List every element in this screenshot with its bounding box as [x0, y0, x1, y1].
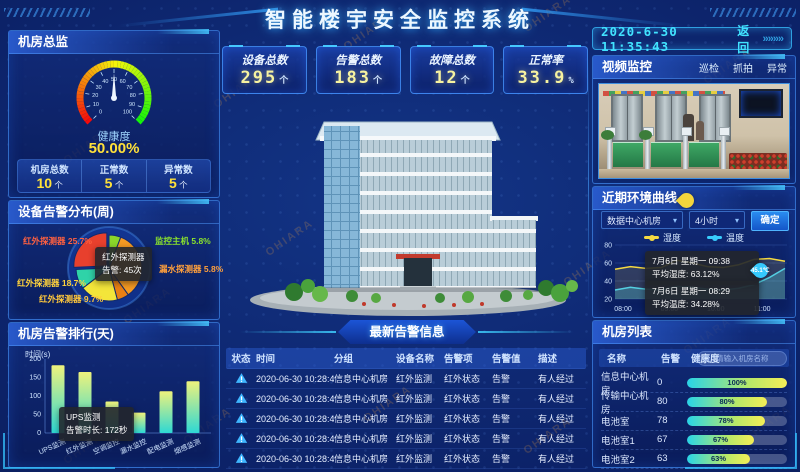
- alarm-desc: 有人经过: [538, 452, 586, 465]
- legend-marker-icon: [707, 236, 722, 239]
- health-bar-fill: 63%: [687, 454, 750, 464]
- svg-text:90: 90: [129, 102, 135, 108]
- col-alarms: 告警: [661, 351, 691, 365]
- latest-alarm-banner: 最新告警信息: [338, 320, 476, 344]
- col-name: 名称: [607, 351, 661, 365]
- alarm-value: 告警: [492, 372, 538, 385]
- alarm-group: 信息中心机房: [334, 392, 396, 405]
- room-metric-1: 正常数5 个: [81, 160, 145, 192]
- room-select-value: 数据中心机房: [607, 216, 661, 226]
- alarm-desc: 有人经过: [538, 372, 586, 385]
- health-bar-track: 67%: [687, 435, 787, 445]
- stat-row: 设备总数295个告警总数183个故障总数12个正常率33.9%: [222, 46, 588, 94]
- room-alarm-count: 80: [657, 396, 687, 407]
- video-tab-0[interactable]: 巡检: [699, 60, 719, 75]
- metric-unit: 个: [112, 180, 123, 190]
- video-tab-1[interactable]: 抓拍: [733, 60, 753, 75]
- stat-label: 设备总数: [223, 52, 306, 68]
- alarm-item: 红外状态: [444, 432, 492, 445]
- svg-text:60: 60: [604, 261, 612, 268]
- alarm-col-header: 告警值: [492, 351, 538, 365]
- health-bar-fill: 100%: [687, 378, 787, 388]
- plant: [639, 130, 652, 140]
- alarm-value: 告警: [492, 432, 538, 445]
- room-list-row: 传输中心机房8080%: [601, 392, 787, 412]
- alarm-item: 红外状态: [444, 392, 492, 405]
- chevron-down-icon: ▾: [673, 212, 677, 230]
- svg-text:100: 100: [123, 109, 132, 115]
- stat-box-2: 故障总数12个: [410, 46, 495, 94]
- turnstile-glass: [613, 142, 643, 167]
- alarm-col-header: 设备名称: [396, 351, 444, 365]
- warning-icon: [235, 412, 248, 424]
- plant: [601, 130, 614, 140]
- alarm-value: 告警: [492, 392, 538, 405]
- room-alarm-count: 0: [657, 377, 687, 388]
- svg-text:40: 40: [102, 79, 108, 85]
- alarm-status-icon: [226, 432, 256, 446]
- panel-title: 设备告警分布(周): [9, 201, 219, 224]
- alarm-col-header: 状态: [226, 351, 256, 365]
- datetime-display: 2020-6-30 11:35:43: [601, 24, 737, 54]
- svg-text:08:00: 08:00: [614, 306, 632, 313]
- panel-room-overview: 机房总监 0102030405060708090100 健康度 50.00% 机…: [8, 30, 220, 198]
- room-metric-2: 异常数5 个: [146, 160, 210, 192]
- tooltip-date: 7月6日 星期一 08:29: [652, 285, 752, 298]
- room-search-box[interactable]: [697, 351, 787, 366]
- stat-box-3: 正常率33.9%: [503, 46, 588, 94]
- stat-box-1: 告警总数183个: [316, 46, 401, 94]
- alarm-value: 告警: [492, 412, 538, 425]
- room-select[interactable]: 数据中心机房 ▾: [601, 211, 683, 229]
- stat-box-0: 设备总数295个: [222, 46, 307, 94]
- alarm-status-icon: [226, 392, 256, 406]
- stat-label: 正常率: [504, 52, 587, 68]
- stat-unit: 个: [279, 76, 288, 86]
- stat-unit: 个: [373, 76, 382, 86]
- alarm-device: 红外监测: [396, 412, 444, 425]
- stat-value: 295个: [223, 68, 306, 91]
- warning-icon: [235, 452, 248, 464]
- room-metric-0: 机房总数10 个: [18, 160, 81, 192]
- metric-unit: 个: [52, 180, 63, 190]
- metric-value: 5 个: [82, 176, 145, 193]
- health-bar-track: 80%: [687, 397, 787, 407]
- period-select-value: 4小时: [695, 216, 718, 226]
- stat-unit: 个: [461, 76, 470, 86]
- banner-line-left: [240, 331, 336, 333]
- health-bar-track: 100%: [687, 378, 787, 388]
- svg-text:40: 40: [604, 279, 612, 286]
- alarm-item: 红外状态: [444, 412, 492, 425]
- panel-title: 机房告警排行(天): [9, 323, 219, 346]
- turnstile-post: [683, 134, 688, 170]
- svg-text:30: 30: [96, 85, 102, 91]
- panel-video: 视频监控 巡检抓拍异常: [592, 55, 796, 184]
- room-alarm-count: 67: [657, 434, 687, 445]
- alarm-device: 红外监测: [396, 372, 444, 385]
- person: [696, 121, 704, 140]
- health-bar-fill: 80%: [687, 397, 767, 407]
- confirm-button[interactable]: 确定: [751, 211, 789, 231]
- stat-value: 12个: [411, 68, 494, 91]
- pie-tooltip-name: 红外探测器: [102, 251, 145, 264]
- turnstile-glass: [651, 142, 681, 167]
- alarm-status-icon: [226, 452, 256, 466]
- room-search-input[interactable]: [714, 353, 781, 364]
- back-button[interactable]: 返回: [737, 22, 758, 56]
- back-arrows-icon: »»»»: [763, 33, 783, 45]
- period-select[interactable]: 4小时 ▾: [689, 211, 745, 229]
- metric-label: 机房总数: [18, 162, 81, 176]
- svg-text:60: 60: [120, 79, 126, 85]
- alarm-col-header: 描述: [538, 351, 586, 365]
- room-name: 电池室: [601, 414, 657, 428]
- alarm-device: 红外监测: [396, 392, 444, 405]
- gauge-value: 50.00%: [9, 140, 219, 157]
- svg-text:150: 150: [29, 375, 41, 382]
- alarm-time: 2020-06-30 10:28:48: [256, 414, 334, 424]
- building-illustration: [224, 96, 592, 318]
- video-tab-2[interactable]: 异常: [767, 60, 787, 75]
- alarm-group: 信息中心机房: [334, 372, 396, 385]
- svg-text:配电监测: 配电监测: [146, 437, 175, 457]
- alarm-table: 状态时间分组设备名称告警项告警值描述 2020-06-30 10:28:48信息…: [226, 348, 586, 466]
- metric-value: 5 个: [147, 176, 210, 193]
- bar-tooltip-value: 告警时长: 172秒: [66, 424, 127, 437]
- panel-title: 机房列表: [593, 321, 795, 344]
- gauge-svg: 0102030405060708090100: [44, 54, 184, 130]
- alarm-time: 2020-06-30 10:28:48: [256, 394, 334, 404]
- alarm-row: 2020-06-30 10:28:48信息中心机房红外监测红外状态告警有人经过: [226, 369, 586, 389]
- room-alarm-count: 63: [657, 453, 687, 464]
- stat-value: 33.9%: [504, 68, 587, 91]
- env-tooltip-temperature: 7月6日 星期一 08:29 平均温度: 34.28%: [645, 281, 759, 315]
- svg-text:80: 80: [130, 93, 136, 99]
- alarm-row: 2020-06-30 10:28:48信息中心机房红外监测红外状态告警有人经过: [226, 429, 586, 449]
- alarm-group: 信息中心机房: [334, 452, 396, 465]
- chevron-down-icon: ▾: [735, 212, 739, 230]
- alarm-row: 2020-06-30 10:28:48信息中心机房红外监测红外状态告警有人经过: [226, 449, 586, 469]
- metric-label: 正常数: [82, 162, 145, 176]
- alarm-col-header: 时间: [256, 351, 334, 365]
- legend-marker-icon: [644, 236, 659, 239]
- wall-display: [739, 89, 783, 118]
- bar-tooltip: UPS监测 告警时长: 172秒: [59, 407, 134, 441]
- health-bar-fill: 78%: [687, 416, 765, 426]
- alarm-group: 信息中心机房: [334, 432, 396, 445]
- alarm-device: 红外监测: [396, 452, 444, 465]
- svg-text:200: 200: [29, 356, 41, 363]
- turnstile-glass: [689, 142, 719, 167]
- panel-env-curve: 近期环境曲线 数据中心机房 ▾ 4小时 ▾ 确定 湿度温度 2040608008…: [592, 186, 796, 318]
- metric-label: 异常数: [147, 162, 210, 176]
- alarm-desc: 有人经过: [538, 432, 586, 445]
- metric-value: 10 个: [18, 176, 81, 193]
- alarm-table-body: 2020-06-30 10:28:48信息中心机房红外监测红外状态告警有人经过2…: [226, 369, 586, 469]
- room-list-row: 电池室26363%: [601, 449, 787, 469]
- warning-icon: [235, 372, 248, 384]
- svg-text:烟感监测: 烟感监测: [173, 437, 202, 457]
- room-name: 电池室1: [601, 433, 657, 447]
- alarm-time: 2020-06-30 10:28:48: [256, 434, 334, 444]
- pin-label: 45.1℃: [751, 267, 769, 274]
- svg-text:80: 80: [604, 243, 612, 250]
- tooltip-date: 7月6日 星期一 09:38: [652, 255, 752, 268]
- alarm-status-icon: [226, 412, 256, 426]
- stat-label: 告警总数: [317, 52, 400, 68]
- metric-unit: 个: [177, 180, 188, 190]
- divider-line: [588, 58, 589, 310]
- bar-tooltip-name: UPS监测: [66, 411, 127, 424]
- alarm-status-icon: [226, 372, 256, 386]
- alarm-col-header: 分组: [334, 351, 396, 365]
- room-metrics: 机房总数10 个正常数5 个异常数5 个: [17, 159, 211, 193]
- svg-text:20: 20: [604, 297, 612, 304]
- svg-text:20: 20: [92, 93, 98, 99]
- svg-text:50: 50: [33, 412, 41, 419]
- stat-unit: %: [568, 76, 573, 86]
- panel-alarm-ranking: 机房告警排行(天) 时间(s) 050100150200UPS监测红外监测空调监…: [8, 322, 220, 468]
- warning-icon: [235, 432, 248, 444]
- pie-tooltip: 红外探测器 告警: 45次: [95, 247, 152, 281]
- health-gauge[interactable]: 0102030405060708090100: [44, 54, 184, 135]
- room-list-row: 电池室16767%: [601, 430, 787, 450]
- stat-label: 故障总数: [411, 52, 494, 68]
- alarm-row: 2020-06-30 10:28:48信息中心机房红外监测红外状态告警有人经过: [226, 409, 586, 429]
- alarm-table-header: 状态时间分组设备名称告警项告警值描述: [226, 348, 586, 369]
- alarm-device: 红外监测: [396, 432, 444, 445]
- alarm-item: 红外状态: [444, 372, 492, 385]
- svg-text:100: 100: [29, 393, 41, 400]
- health-bar-fill: 67%: [687, 435, 754, 445]
- gate-reader: [681, 127, 692, 136]
- alarm-desc: 有人经过: [538, 392, 586, 405]
- room-name: 电池室2: [601, 452, 657, 466]
- alarm-time: 2020-06-30 10:28:48: [256, 374, 334, 384]
- room-list-row: 电池室7878%: [601, 411, 787, 431]
- alarm-time: 2020-06-30 10:28:48: [256, 454, 334, 464]
- panel-alarm-distribution: 设备告警分布(周) 红外探测器 25.7%监控主机 5.8%漏水探测器 5.8%…: [8, 200, 220, 320]
- health-bar-track: 78%: [687, 416, 787, 426]
- warning-icon: [235, 392, 248, 404]
- room-alarm-count: 78: [657, 415, 687, 426]
- panel-room-list: 机房列表 名称 告警 健康度 信息中心机房0100%传输中心机房8080%电池室…: [592, 320, 796, 468]
- alarm-value: 告警: [492, 452, 538, 465]
- alarm-item: 红外状态: [444, 452, 492, 465]
- banner-line-right: [478, 331, 574, 333]
- flower-bed: [729, 153, 787, 170]
- tooltip-value: 平均温度: 34.28%: [652, 298, 752, 311]
- tooltip-value: 平均湿度: 63.12%: [652, 268, 752, 281]
- search-icon: [703, 355, 711, 363]
- svg-text:10: 10: [93, 102, 99, 108]
- bar-漏水监控[interactable]: [133, 413, 146, 433]
- dashboard-screen: OHIARAOHIARAOHIARAOHIARAOHIARAOHIARAOHIA…: [0, 0, 800, 472]
- bar-烟感监测[interactable]: [187, 381, 200, 433]
- lobby-floor: [599, 169, 789, 178]
- pie-tooltip-value: 告警: 45次: [102, 264, 145, 277]
- gate-reader: [719, 127, 730, 136]
- svg-text:70: 70: [126, 85, 132, 91]
- svg-text:0: 0: [99, 109, 102, 115]
- video-frame[interactable]: [598, 83, 790, 179]
- panel-title: 机房总监: [9, 31, 219, 54]
- turnstile-post: [721, 134, 726, 170]
- video-tabs: 巡检抓拍异常: [699, 60, 787, 75]
- alarm-col-header: 告警项: [444, 351, 492, 365]
- alarm-group: 信息中心机房: [334, 412, 396, 425]
- alarm-desc: 有人经过: [538, 412, 586, 425]
- datetime-bar: 2020-6-30 11:35:43 返回 »»»»: [592, 27, 792, 50]
- svg-text:0: 0: [37, 430, 41, 437]
- bar-配电监测[interactable]: [160, 391, 173, 433]
- alarm-row: 2020-06-30 10:28:48信息中心机房红外监测红外状态告警有人经过: [226, 389, 586, 409]
- health-bar-track: 63%: [687, 454, 787, 464]
- stat-value: 183个: [317, 68, 400, 91]
